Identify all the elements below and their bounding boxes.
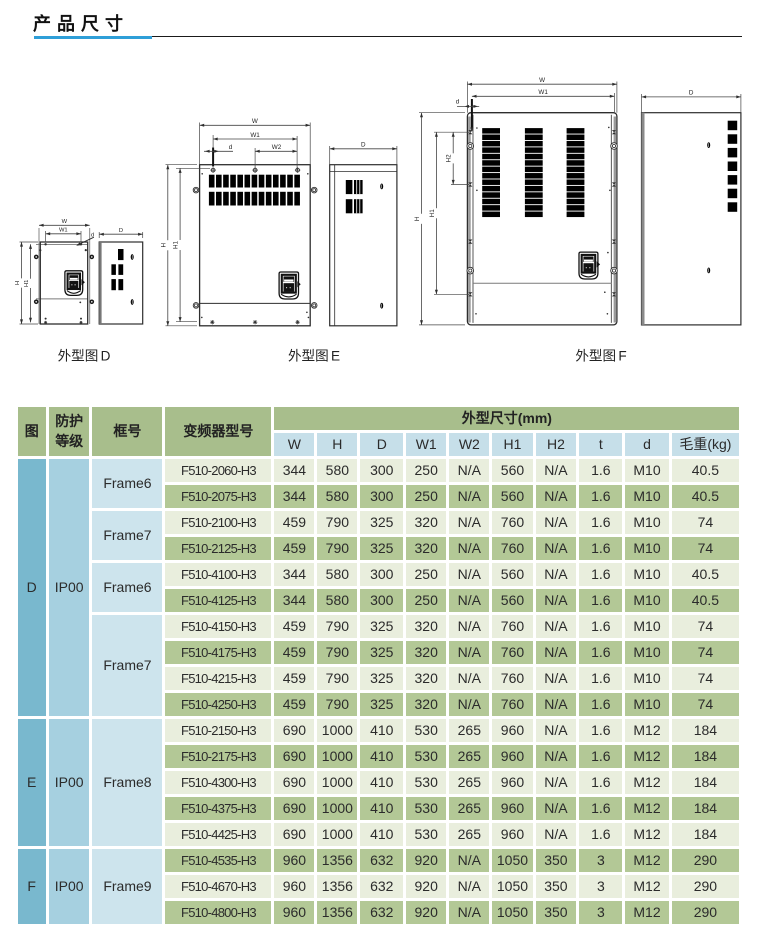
svg-text:W2: W2 [272, 144, 282, 151]
svg-text:H: H [160, 243, 167, 248]
svg-text:外型图 D: 外型图 D [58, 349, 111, 364]
svg-text:d: d [91, 233, 94, 239]
svg-text:W: W [252, 118, 258, 125]
svg-text:D: D [119, 228, 123, 234]
svg-text:D: D [689, 90, 694, 97]
svg-text:W: W [539, 77, 545, 84]
svg-text:外型图 F: 外型图 F [575, 349, 626, 364]
svg-text:H1: H1 [24, 280, 30, 287]
svg-text:d: d [456, 99, 460, 106]
svg-text:H1: H1 [429, 209, 436, 218]
svg-text:W1: W1 [59, 228, 68, 234]
svg-text:H2: H2 [446, 154, 453, 163]
svg-text:H: H [15, 281, 21, 285]
svg-text:W1: W1 [538, 89, 548, 96]
svg-text:d: d [229, 144, 233, 151]
svg-text:D: D [361, 142, 366, 149]
svg-text:外型图 E: 外型图 E [288, 349, 340, 364]
svg-text:W1: W1 [250, 132, 260, 139]
svg-text:H: H [414, 216, 421, 221]
svg-text:H1: H1 [173, 240, 180, 249]
svg-text:W: W [62, 219, 68, 225]
